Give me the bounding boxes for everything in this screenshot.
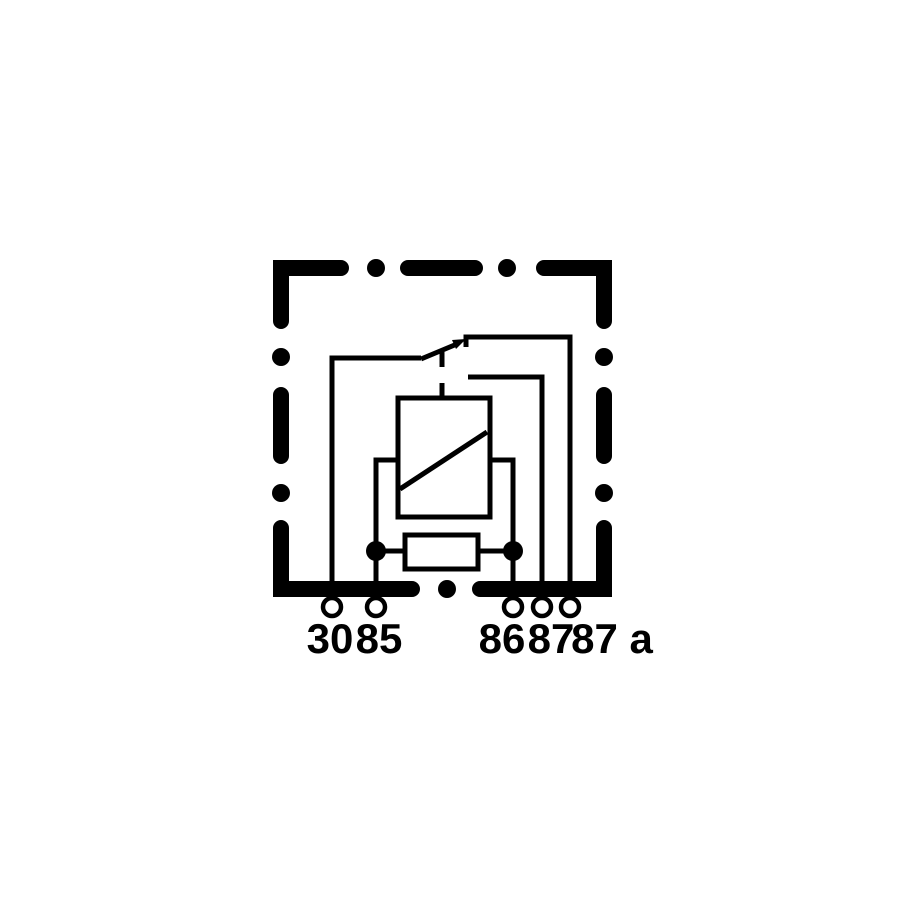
relay-diagram-canvas: 30 85 86 87 87 a: [0, 0, 915, 915]
terminal-85-label: 85: [356, 615, 403, 662]
housing-dot: [498, 259, 516, 277]
terminal-87-label: 87: [528, 615, 575, 662]
terminal-87a-pin: [561, 598, 579, 616]
housing-dot: [272, 484, 290, 502]
housing-dot: [595, 484, 613, 502]
diagram-background: [0, 0, 915, 915]
terminal-87-pin: [533, 598, 551, 616]
housing-dot: [367, 259, 385, 277]
junction-dot-85: [366, 541, 386, 561]
terminal-86-pin: [504, 598, 522, 616]
terminal-86-label: 86: [479, 615, 526, 662]
terminal-labels: 30 85 86 87 87 a: [307, 615, 654, 662]
relay-schematic-drawing: 30 85 86 87 87 a: [0, 0, 915, 915]
terminal-85-pin: [367, 598, 385, 616]
housing-dot: [272, 348, 290, 366]
terminal-30-label: 30: [307, 615, 354, 662]
housing-dot: [438, 580, 456, 598]
resistor-symbol: [405, 535, 478, 569]
terminal-87a-label: 87 a: [571, 615, 653, 662]
junction-dot-86: [503, 541, 523, 561]
housing-dot: [595, 348, 613, 366]
terminal-30-pin: [323, 598, 341, 616]
